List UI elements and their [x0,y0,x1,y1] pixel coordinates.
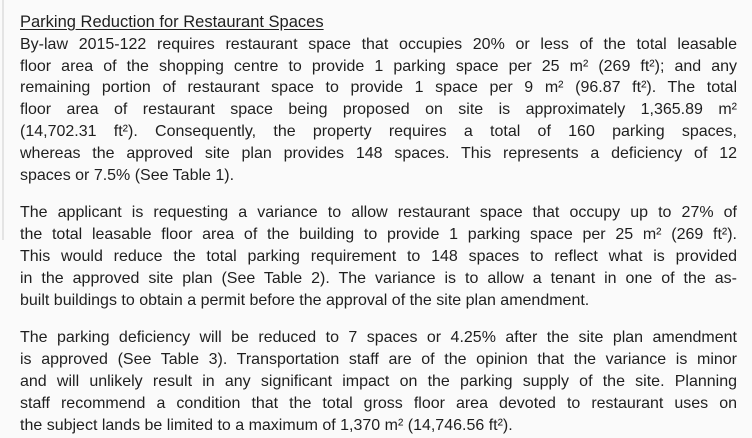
text-line: By-law 2015-122 requires restaurant spac… [20,34,737,56]
document-heading: Parking Reduction for Restaurant Spaces [20,12,737,34]
paragraph-bylaw-requirements: By-law 2015-122 requires restaurant spac… [20,34,737,187]
text-line: The parking deficiency will be reduced t… [20,327,737,349]
text-line: The applicant is requesting a variance t… [20,202,737,224]
paragraph-applicant-variance: The applicant is requesting a variance t… [20,202,737,311]
text-line: in the approved site plan (See Table 2).… [20,268,737,290]
paragraph-staff-opinion: The parking deficiency will be reduced t… [20,327,737,436]
text-line: built buildings to obtain a permit befor… [20,290,737,312]
text-line: spaces or 7.5% (See Table 1). [20,165,737,187]
text-line: and will unlikely result in any signific… [20,371,737,393]
document-page: Parking Reduction for Restaurant Spaces … [0,0,752,438]
text-line: staff recommend a condition that the tot… [20,393,737,415]
text-line: remaining portion of restaurant space to… [20,77,737,99]
text-line: floor area of the shopping centre to pro… [20,56,737,78]
text-line: whereas the approved site plan provides … [20,143,737,165]
text-line: the total leasable floor area of the bui… [20,224,737,246]
text-line: floor area of restaurant space being pro… [20,99,737,121]
text-line: (14,702.31 ft²). Consequently, the prope… [20,121,737,143]
text-line: This would reduce the total parking requ… [20,246,737,268]
text-line: the subject lands be limited to a maximu… [20,415,737,437]
text-line: is approved (See Table 3). Transportatio… [20,349,737,371]
